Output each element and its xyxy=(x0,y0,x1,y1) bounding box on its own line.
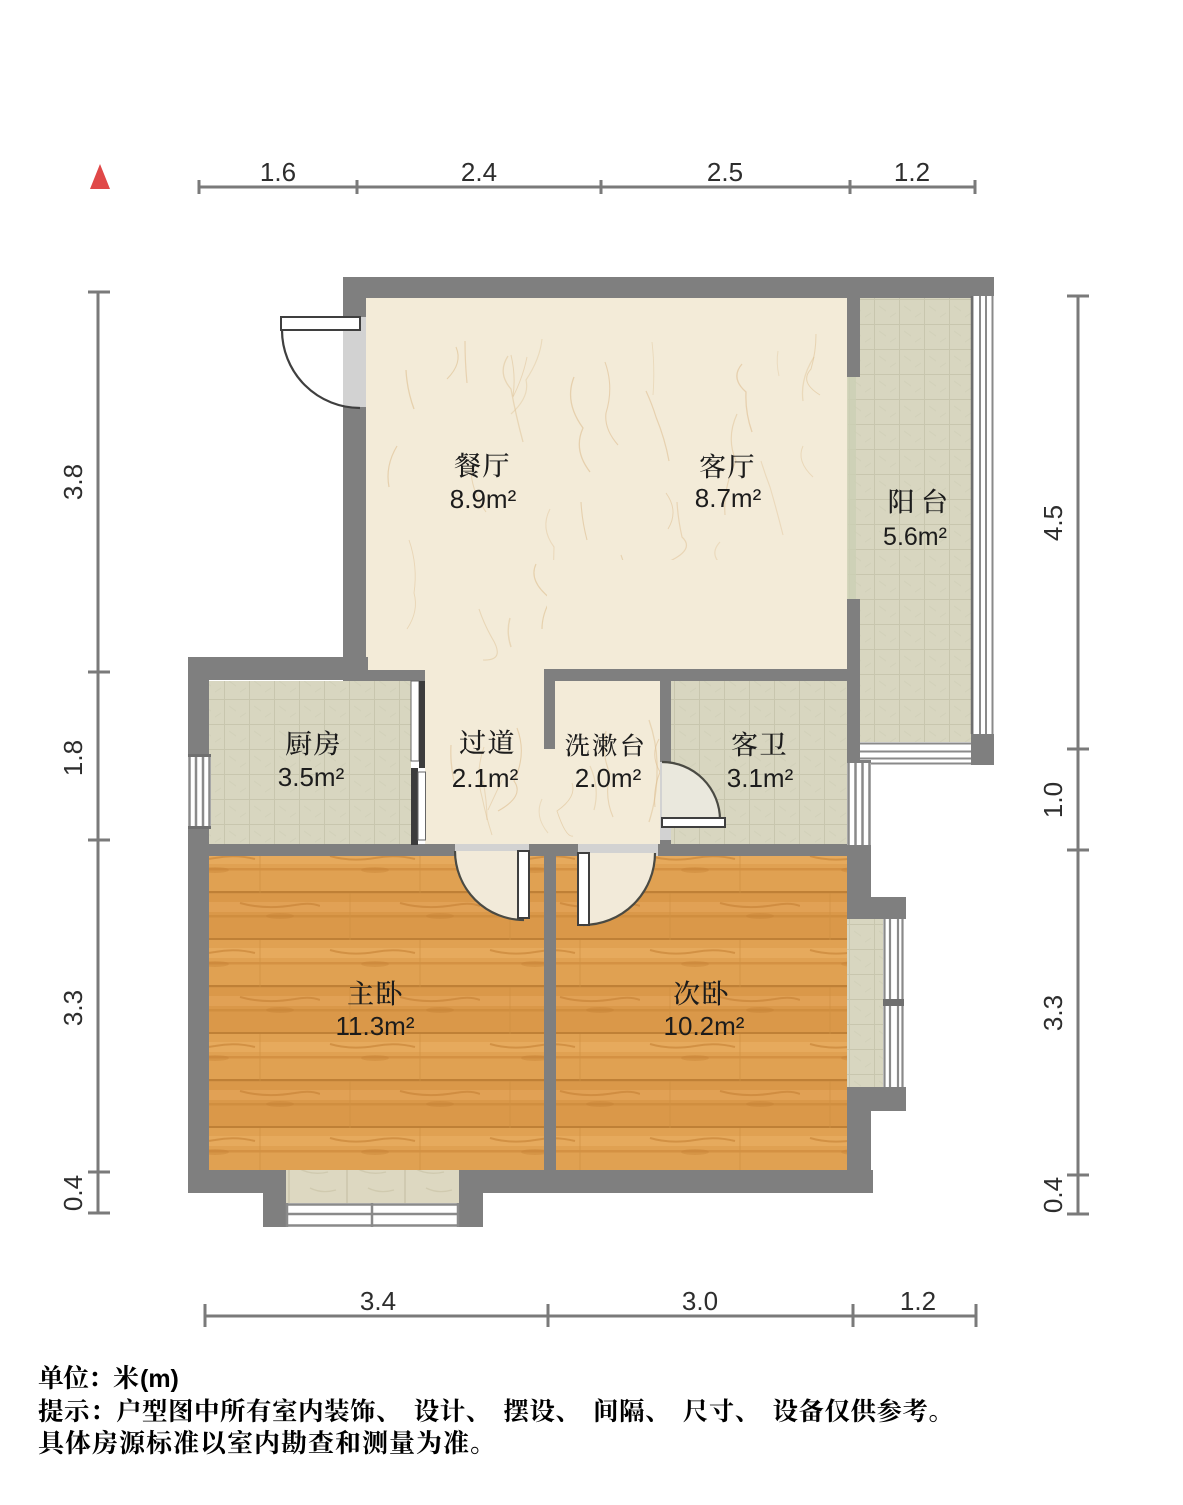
svg-text:0.4: 0.4 xyxy=(58,1175,88,1211)
svg-text:4.5: 4.5 xyxy=(1038,505,1068,541)
svg-text:1.2: 1.2 xyxy=(900,1286,936,1316)
svg-text:8.9m²: 8.9m² xyxy=(450,484,517,514)
svg-text:3.3: 3.3 xyxy=(1038,995,1068,1031)
svg-text:3.0: 3.0 xyxy=(682,1286,718,1316)
svg-text:11.3m²: 11.3m² xyxy=(336,1011,415,1041)
svg-text:1.2: 1.2 xyxy=(894,157,930,187)
svg-text:2.1m²: 2.1m² xyxy=(452,763,519,793)
svg-text:1.6: 1.6 xyxy=(260,157,296,187)
svg-text:0.4: 0.4 xyxy=(1038,1177,1068,1213)
svg-text:3.5m²: 3.5m² xyxy=(278,762,345,792)
svg-text:1.8: 1.8 xyxy=(58,740,88,776)
svg-text:10.2m²: 10.2m² xyxy=(664,1011,745,1041)
svg-text:(m): (m) xyxy=(140,1365,179,1393)
svg-text:2.0m²: 2.0m² xyxy=(575,763,642,793)
svg-text:3.3: 3.3 xyxy=(58,990,88,1026)
svg-text:2.5: 2.5 xyxy=(707,157,743,187)
svg-text:2.4: 2.4 xyxy=(461,157,497,187)
svg-text:8.7m²: 8.7m² xyxy=(695,483,762,513)
svg-text:5.6m²: 5.6m² xyxy=(883,523,947,551)
svg-text:3.4: 3.4 xyxy=(360,1286,396,1316)
svg-text:3.1m²: 3.1m² xyxy=(727,763,794,793)
svg-text:3.8: 3.8 xyxy=(58,464,88,500)
svg-text:1.0: 1.0 xyxy=(1038,782,1068,818)
